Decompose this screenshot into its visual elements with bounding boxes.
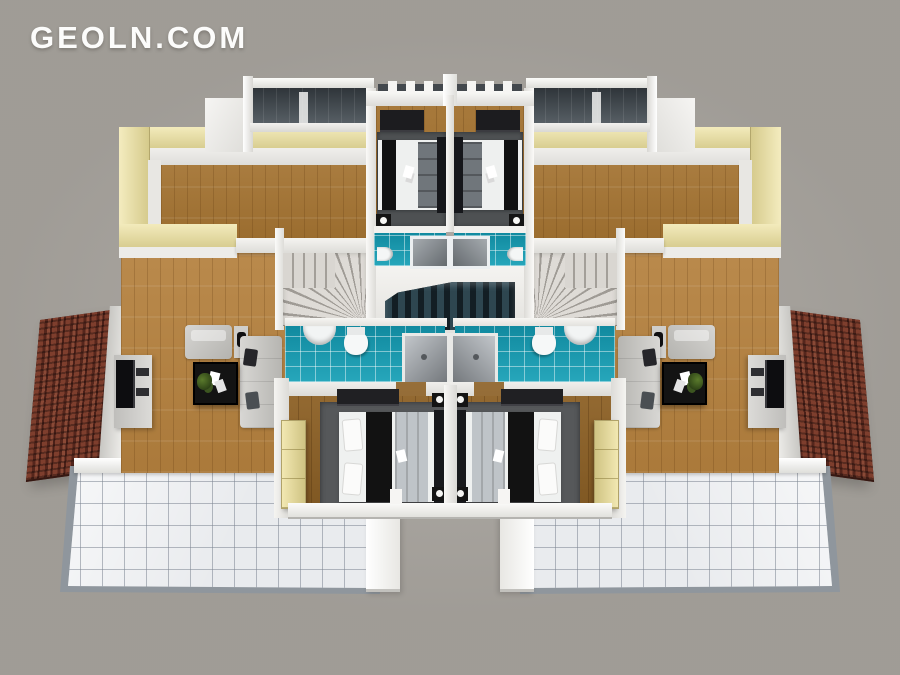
railing-post: [485, 81, 494, 93]
party-wall: [446, 95, 454, 232]
wall-post: [390, 489, 402, 504]
railing-post: [503, 81, 512, 93]
railing-post: [424, 81, 433, 93]
floorplan-render: GEOLN.COM: [0, 0, 900, 675]
site-watermark: GEOLN.COM: [30, 20, 248, 56]
building-plan: [0, 0, 900, 675]
railing-post: [388, 81, 397, 93]
south-wall-band: [288, 503, 612, 519]
wall-post: [498, 489, 510, 504]
overlay-layer: [0, 0, 900, 675]
railing-post: [406, 81, 415, 93]
railing-post: [467, 81, 476, 93]
party-wall: [444, 385, 457, 511]
